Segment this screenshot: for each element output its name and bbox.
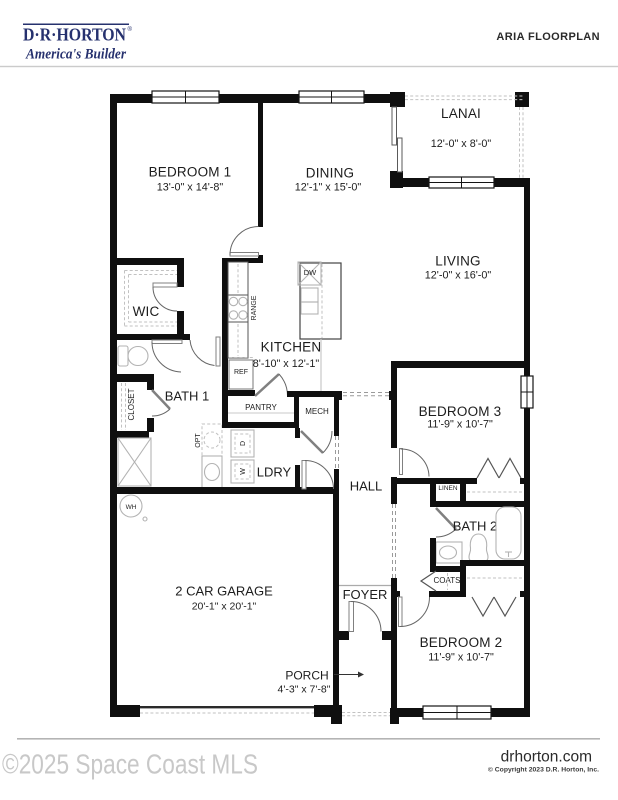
svg-text:4'-3" x 7'-8": 4'-3" x 7'-8" [278, 684, 331, 696]
svg-text:®: ® [128, 26, 133, 33]
svg-text:RANGE: RANGE [251, 295, 258, 320]
svg-text:20'-1" x 20'-1": 20'-1" x 20'-1" [192, 601, 257, 613]
svg-text:PORCH: PORCH [285, 669, 328, 683]
svg-text:D: D [240, 441, 247, 446]
svg-text:OPT: OPT [195, 433, 202, 448]
svg-text:BATH 2: BATH 2 [453, 519, 498, 534]
svg-text:© Copyright 2023 D.R. Horton,: © Copyright 2023 D.R. Horton, Inc. [488, 766, 599, 774]
svg-text:BEDROOM 3: BEDROOM 3 [419, 404, 502, 419]
svg-text:©2025 Space Coast MLS: ©2025 Space Coast MLS [2, 749, 258, 780]
svg-text:HALL: HALL [350, 479, 383, 494]
svg-text:LDRY: LDRY [257, 465, 292, 480]
svg-text:America's Builder: America's Builder [25, 47, 126, 63]
svg-text:BEDROOM 1: BEDROOM 1 [149, 165, 232, 180]
svg-text:D·R·HORTON: D·R·HORTON [23, 25, 126, 45]
svg-text:12'-1" x 15'-0": 12'-1" x 15'-0" [295, 181, 362, 193]
svg-text:11'-9" x 10'-7": 11'-9" x 10'-7" [428, 651, 494, 663]
svg-text:2 CAR GARAGE: 2 CAR GARAGE [175, 584, 273, 599]
svg-text:KITCHEN: KITCHEN [261, 340, 322, 355]
svg-text:FOYER: FOYER [343, 587, 388, 602]
svg-text:drhorton.com: drhorton.com [501, 749, 592, 766]
svg-text:ARIA FLOORPLAN: ARIA FLOORPLAN [496, 31, 600, 43]
svg-text:DW: DW [304, 268, 317, 277]
svg-text:13'-0" x 14'-8": 13'-0" x 14'-8" [157, 181, 224, 193]
svg-text:BEDROOM 2: BEDROOM 2 [420, 635, 503, 650]
svg-text:12'-0" x 8'-0": 12'-0" x 8'-0" [431, 138, 492, 150]
svg-text:LIVING: LIVING [435, 254, 480, 269]
svg-text:LINEN: LINEN [438, 485, 457, 492]
svg-text:8'-10" x 12'-1": 8'-10" x 12'-1" [253, 358, 320, 370]
svg-text:WIC: WIC [133, 304, 160, 319]
svg-text:CLOSET: CLOSET [127, 388, 136, 420]
svg-text:11'-9" x 10'-7": 11'-9" x 10'-7" [427, 418, 493, 430]
svg-text:WH: WH [126, 504, 137, 511]
svg-text:MECH: MECH [305, 407, 329, 416]
svg-text:PANTRY: PANTRY [245, 403, 277, 412]
svg-text:DINING: DINING [306, 166, 354, 181]
svg-text:REF: REF [234, 369, 248, 376]
svg-text:BATH 1: BATH 1 [165, 389, 210, 404]
svg-text:W: W [240, 468, 247, 475]
svg-text:LANAI: LANAI [441, 106, 481, 121]
svg-text:12'-0" x 16'-0": 12'-0" x 16'-0" [425, 269, 492, 281]
